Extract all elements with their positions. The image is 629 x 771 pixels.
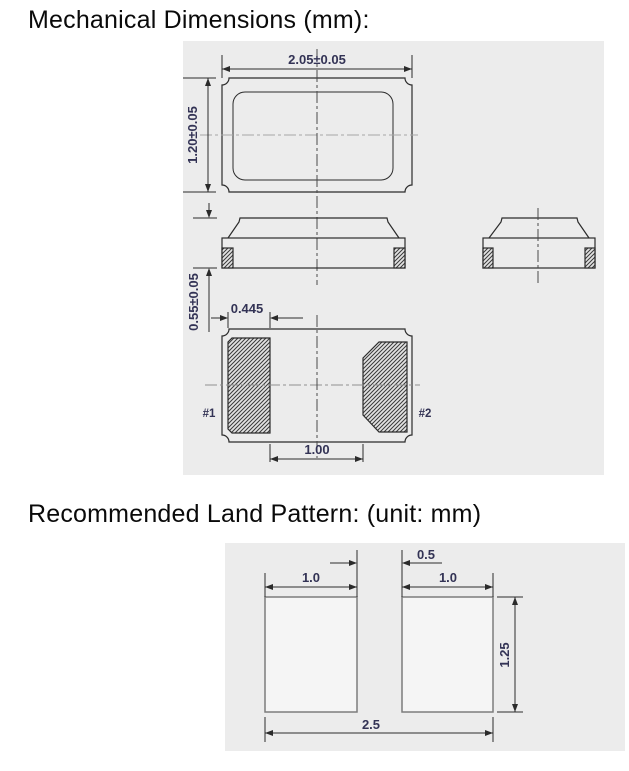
dim-pad-pitch-label: 1.00 bbox=[304, 442, 329, 457]
pad1-label: #1 bbox=[203, 408, 216, 420]
land-pattern-heading: Recommended Land Pattern: (unit: mm) bbox=[28, 500, 481, 529]
dim-body-height-label: 1.20±0.05 bbox=[185, 106, 200, 164]
pad-2 bbox=[363, 342, 407, 432]
land-pad-left bbox=[265, 597, 357, 712]
terminal-left-end bbox=[483, 248, 493, 268]
mechanical-dimensions-heading: Mechanical Dimensions (mm): bbox=[28, 6, 370, 35]
terminal-left-front bbox=[222, 248, 233, 268]
mechanical-drawing: 2.05±0.05 1.20±0.05 0.55±0.05 bbox=[183, 41, 604, 475]
dim-pad-right-width-label: 1.0 bbox=[439, 570, 457, 585]
land-pad-right bbox=[402, 597, 493, 712]
dim-pad-height-label: 1.25 bbox=[497, 642, 512, 667]
dim-thickness-label: 0.55±0.05 bbox=[186, 273, 201, 331]
dim-pad-width-label: 0.445 bbox=[231, 301, 264, 316]
dim-body-width-label: 2.05±0.05 bbox=[288, 52, 346, 67]
terminal-right-front bbox=[394, 248, 405, 268]
dim-pad-left-width-label: 1.0 bbox=[302, 570, 320, 585]
dim-gap-label: 0.5 bbox=[417, 547, 435, 562]
land-pattern-drawing: 0.5 1.0 1.0 1.25 2.5 bbox=[225, 543, 625, 751]
dim-total-width-label: 2.5 bbox=[362, 717, 380, 732]
terminal-right-end bbox=[585, 248, 595, 268]
pad2-label: #2 bbox=[419, 408, 432, 420]
